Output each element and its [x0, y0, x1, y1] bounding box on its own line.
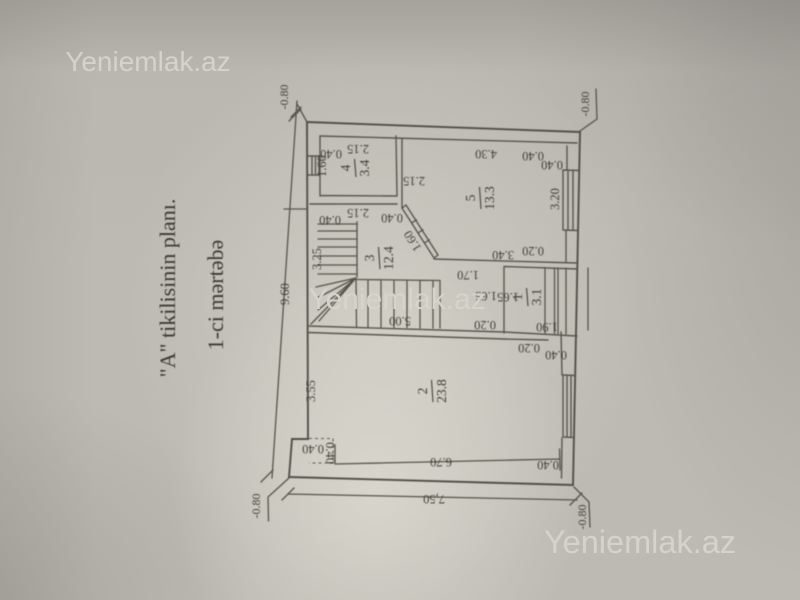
svg-text:0.40: 0.40 [541, 158, 563, 172]
svg-text:3: 3 [362, 254, 377, 261]
svg-text:Yeniemlak.az: Yeniemlak.az [308, 283, 485, 316]
svg-text:2: 2 [415, 388, 430, 395]
svg-text:0.40: 0.40 [302, 442, 324, 456]
svg-text:1.60: 1.60 [315, 155, 329, 177]
svg-text:4: 4 [338, 164, 353, 171]
svg-text:-0.80: -0.80 [249, 494, 263, 519]
svg-text:0.40: 0.40 [323, 442, 337, 464]
svg-text:12.4: 12.4 [381, 246, 396, 270]
svg-text:3.40: 3.40 [492, 248, 514, 262]
svg-text:1.70: 1.70 [457, 268, 479, 282]
svg-text:0.40: 0.40 [381, 211, 403, 225]
svg-text:3.4: 3.4 [357, 159, 372, 176]
svg-text:5: 5 [463, 194, 478, 201]
svg-text:Yeniemlak.az: Yeniemlak.az [544, 524, 736, 560]
svg-text:2.15: 2.15 [347, 142, 369, 156]
svg-text:3.20: 3.20 [548, 188, 562, 210]
svg-text:0.40: 0.40 [319, 213, 341, 227]
svg-text:7,50: 7,50 [423, 492, 445, 506]
svg-text:0.20: 0.20 [474, 318, 496, 332]
svg-text:1.65: 1.65 [497, 290, 519, 304]
svg-text:0.40: 0.40 [522, 149, 544, 163]
svg-text:3.55: 3.55 [304, 380, 318, 402]
svg-text:9.60: 9.60 [278, 283, 292, 305]
svg-text:0.40: 0.40 [537, 458, 559, 472]
svg-text:4.30: 4.30 [475, 147, 497, 161]
svg-text:3.25: 3.25 [310, 248, 324, 270]
svg-text:0.20: 0.20 [522, 244, 544, 258]
svg-text:13.3: 13.3 [482, 186, 497, 210]
svg-text:6.70: 6.70 [430, 455, 452, 469]
svg-text:-0.80: -0.80 [277, 85, 291, 110]
svg-text:3.1: 3.1 [529, 289, 544, 306]
svg-text:1.90: 1.90 [536, 320, 558, 334]
svg-text:2.15: 2.15 [347, 206, 369, 220]
svg-text:2.15: 2.15 [403, 174, 425, 188]
svg-text:0.20: 0.20 [518, 341, 540, 355]
svg-text:"A" tikilisinin planı.: "A" tikilisinin planı. [155, 199, 180, 378]
svg-text:5.00: 5.00 [389, 314, 411, 328]
svg-text:1.60: 1.60 [401, 228, 424, 254]
svg-text:-0.80: -0.80 [578, 92, 592, 117]
svg-text:0.40: 0.40 [545, 348, 567, 362]
svg-text:23.8: 23.8 [434, 379, 449, 403]
svg-text:Yeniemlak.az: Yeniemlak.az [65, 46, 231, 77]
svg-text:1-ci mərtəbə: 1-ci mərtəbə [203, 240, 228, 351]
